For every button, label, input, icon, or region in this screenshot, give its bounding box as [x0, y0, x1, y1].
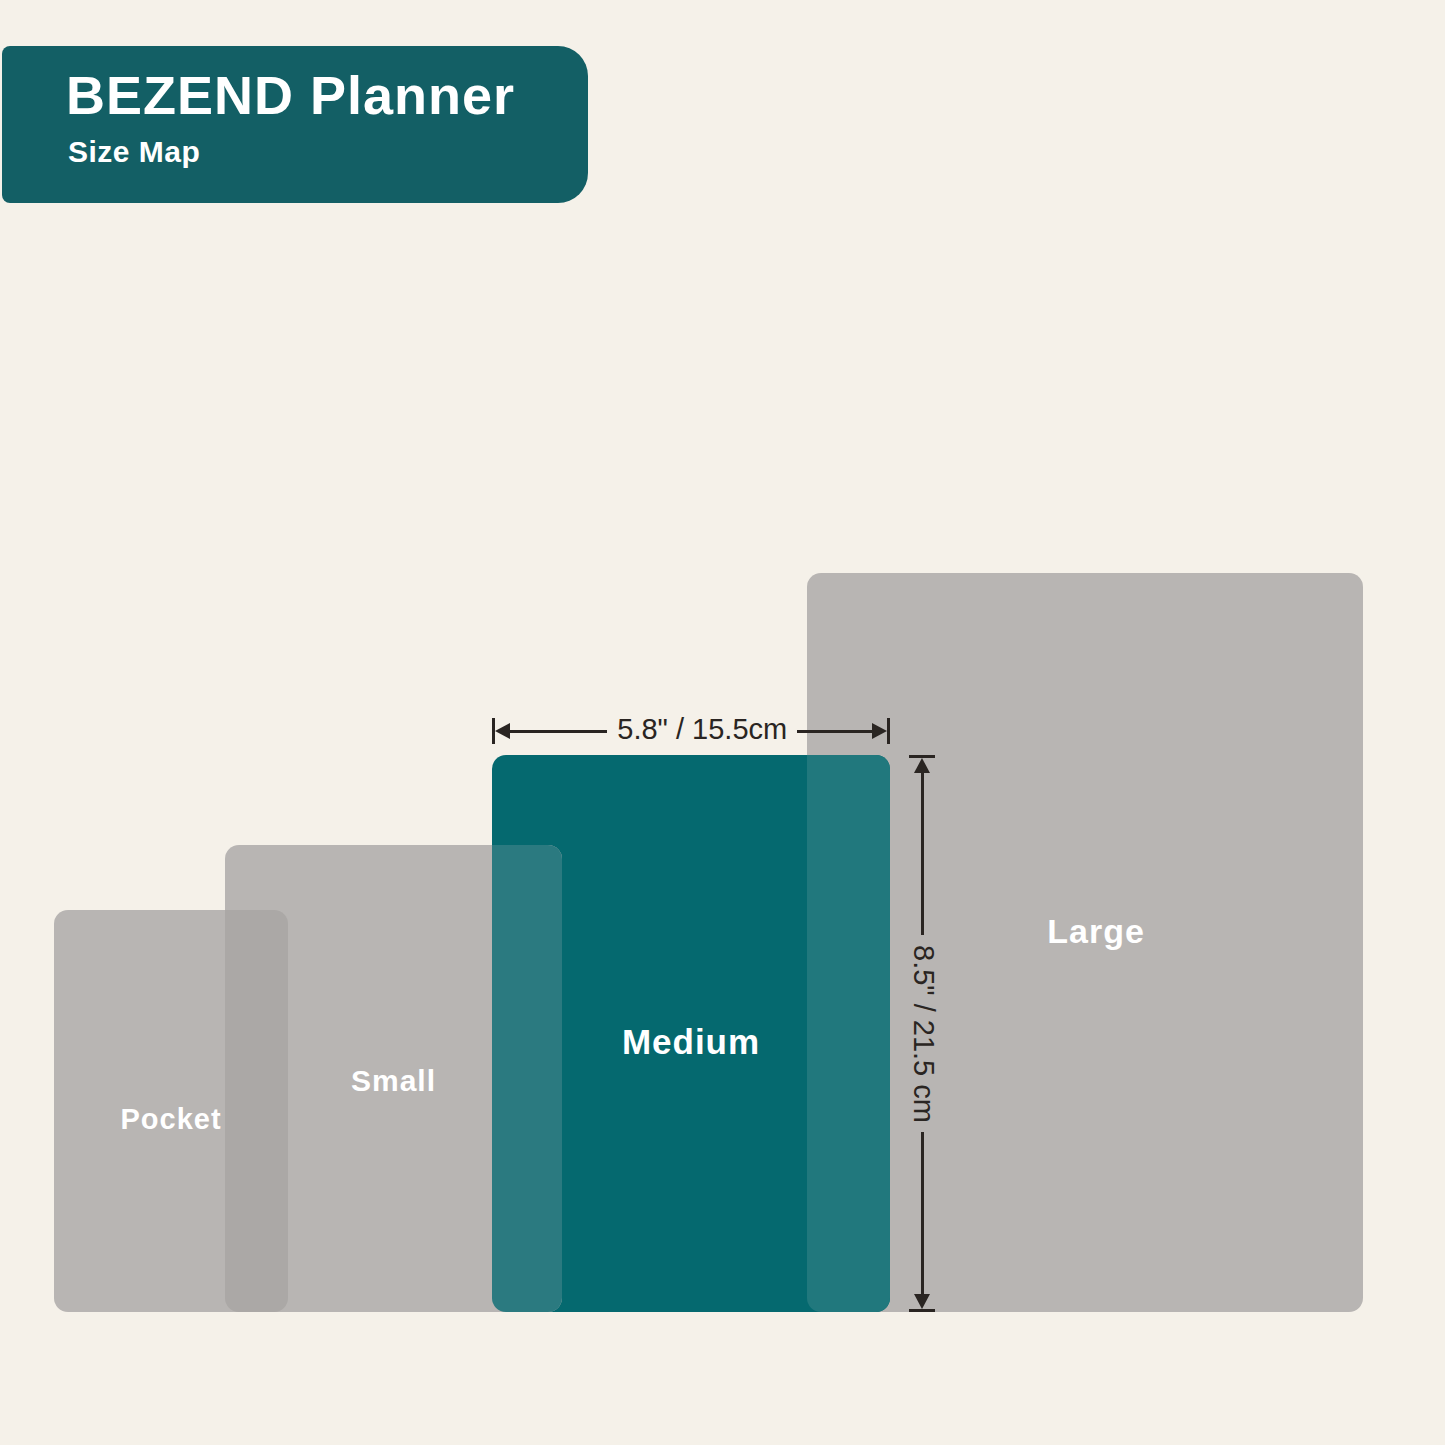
overlap-pocket-small: [225, 910, 288, 1312]
header-banner: BEZEND Planner Size Map: [2, 46, 588, 203]
header-subtitle: Size Map: [68, 135, 588, 169]
size-label-small: Small: [351, 1064, 436, 1098]
brand-title: BEZEND Planner: [66, 66, 588, 125]
overlap-small-medium: [492, 845, 562, 1312]
width-dimension-annotation: 5.8" / 15.5cm: [492, 718, 890, 744]
arrowhead-right-icon: [872, 723, 887, 739]
dimension-tick: [887, 718, 890, 744]
width-dimension-label: 5.8" / 15.5cm: [607, 713, 797, 746]
arrowhead-down-icon: [914, 1294, 930, 1309]
height-dimension-annotation: 8.5" / 21.5 cm: [909, 755, 935, 1312]
dimension-line: [797, 730, 872, 733]
size-label-pocket: Pocket: [120, 1103, 221, 1136]
dimension-tick: [909, 1309, 935, 1312]
size-label-medium: Medium: [622, 1022, 760, 1062]
dimension-line: [510, 730, 607, 733]
arrowhead-up-icon: [914, 758, 930, 773]
size-rect-large: Large: [807, 573, 1363, 1312]
height-dimension-label: 8.5" / 21.5 cm: [907, 935, 940, 1133]
size-label-large: Large: [1047, 912, 1145, 951]
overlap-medium-large: [807, 755, 890, 1312]
arrowhead-left-icon: [495, 723, 510, 739]
dimension-line: [921, 773, 924, 935]
dimension-line: [921, 1132, 924, 1294]
size-map-infographic: BEZEND Planner Size Map Large Medium Sma…: [0, 0, 1445, 1445]
